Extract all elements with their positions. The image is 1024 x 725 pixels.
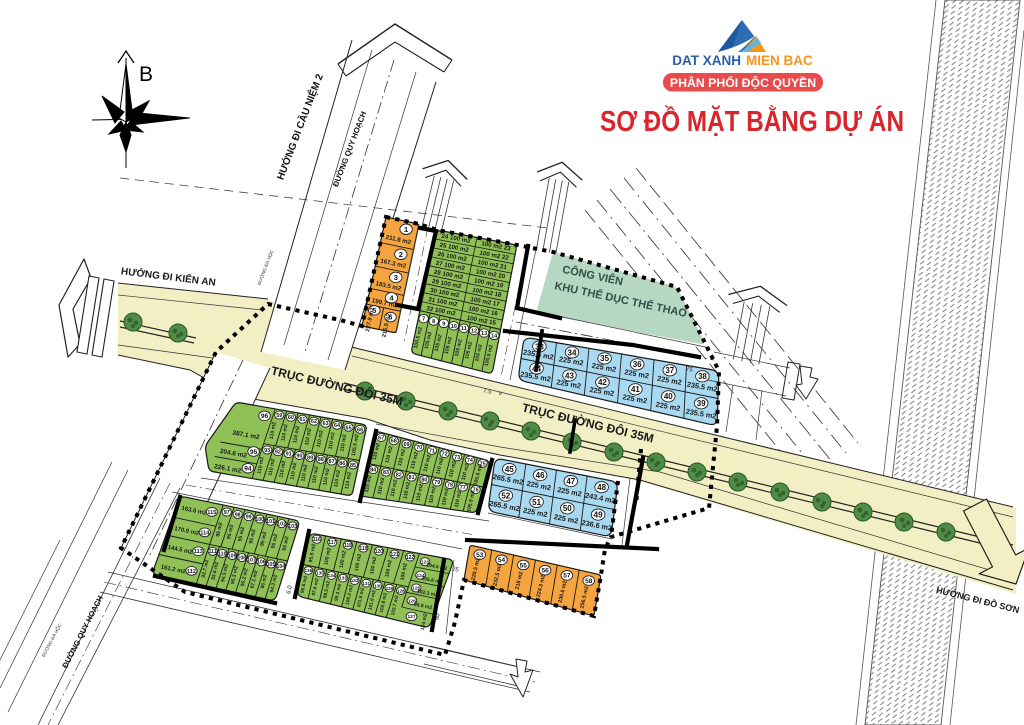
svg-text:82: 82 <box>396 473 402 479</box>
svg-text:68: 68 <box>391 439 397 445</box>
svg-text:69: 69 <box>403 442 409 448</box>
svg-text:134: 134 <box>328 573 336 578</box>
svg-text:135: 135 <box>316 571 324 576</box>
svg-text:ĐƯỜNG ĐÁ HỘC: ĐƯỜNG ĐÁ HỘC <box>40 622 63 658</box>
svg-text:64: 64 <box>334 423 341 429</box>
svg-text:94: 94 <box>244 466 252 473</box>
svg-text:13: 13 <box>481 331 487 337</box>
svg-text:45: 45 <box>505 465 514 474</box>
svg-text:46: 46 <box>536 471 545 480</box>
svg-text:113: 113 <box>194 549 203 555</box>
svg-text:103: 103 <box>288 524 297 530</box>
svg-text:93: 93 <box>264 448 270 454</box>
svg-text:72: 72 <box>442 452 448 458</box>
svg-text:63: 63 <box>322 421 328 427</box>
svg-text:3: 3 <box>394 273 398 282</box>
svg-text:77: 77 <box>460 485 466 491</box>
svg-text:SƠ ĐỒ MẶT BẰNG DỰ ÁN: SƠ ĐỒ MẶT BẰNG DỰ ÁN <box>600 106 904 138</box>
svg-text:66: 66 <box>357 427 363 433</box>
svg-text:10: 10 <box>451 324 457 330</box>
svg-text:80: 80 <box>421 478 427 484</box>
svg-text:84: 84 <box>370 468 377 474</box>
svg-text:50: 50 <box>563 504 572 513</box>
svg-text:95: 95 <box>250 449 258 456</box>
svg-text:107: 107 <box>247 558 256 564</box>
svg-text:120: 120 <box>375 549 384 555</box>
svg-text:9: 9 <box>442 321 445 327</box>
svg-text:73: 73 <box>454 455 460 461</box>
svg-text:ĐƯỜNG QUY HOẠCH: ĐƯỜNG QUY HOẠCH <box>61 594 106 670</box>
svg-text:85: 85 <box>350 463 356 469</box>
svg-text:2: 2 <box>399 250 403 259</box>
svg-text:128: 128 <box>397 588 405 593</box>
svg-text:58: 58 <box>585 578 593 585</box>
svg-text:121: 121 <box>390 552 399 558</box>
svg-text:47: 47 <box>566 477 575 486</box>
svg-text:110: 110 <box>218 551 227 557</box>
svg-text:98: 98 <box>235 512 241 518</box>
svg-text:49: 49 <box>594 511 603 520</box>
svg-text:112: 112 <box>187 569 196 575</box>
svg-text:83: 83 <box>383 470 389 476</box>
svg-text:7: 7 <box>422 317 425 323</box>
svg-text:116: 116 <box>313 537 321 543</box>
svg-text:100: 100 <box>255 517 264 523</box>
svg-text:111: 111 <box>208 549 216 555</box>
svg-text:132: 132 <box>351 578 359 583</box>
svg-text:48: 48 <box>597 483 606 492</box>
svg-text:65: 65 <box>346 425 352 431</box>
svg-text:109: 109 <box>228 553 237 559</box>
svg-text:127: 127 <box>407 614 415 620</box>
svg-text:79: 79 <box>434 480 440 486</box>
svg-text:60: 60 <box>288 415 294 421</box>
svg-text:56: 56 <box>541 568 549 575</box>
svg-text:B: B <box>139 63 153 86</box>
svg-text:136: 136 <box>304 568 312 573</box>
svg-text:118: 118 <box>344 543 352 549</box>
svg-text:71: 71 <box>429 448 435 454</box>
svg-text:12: 12 <box>471 329 477 335</box>
svg-text:92: 92 <box>275 450 281 456</box>
svg-text:51: 51 <box>532 498 541 507</box>
svg-text:89: 89 <box>307 455 313 461</box>
svg-text:130: 130 <box>374 583 382 588</box>
svg-text:86: 86 <box>339 461 345 467</box>
svg-text:133: 133 <box>339 576 347 581</box>
svg-text:52: 52 <box>501 492 510 501</box>
svg-text:105: 105 <box>267 562 276 568</box>
svg-text:1: 1 <box>404 225 408 234</box>
svg-text:61: 61 <box>299 417 305 423</box>
svg-text:11: 11 <box>461 326 467 332</box>
svg-text:122: 122 <box>406 555 415 561</box>
svg-text:99: 99 <box>246 515 252 521</box>
svg-text:119: 119 <box>359 546 367 552</box>
svg-text:PHÂN PHỐI ĐỘC QUYỀN: PHÂN PHỐI ĐỘC QUYỀN <box>670 75 816 90</box>
svg-text:108: 108 <box>237 556 246 562</box>
svg-text:MIEN BAC: MIEN BAC <box>746 53 813 68</box>
svg-text:78: 78 <box>447 483 453 489</box>
svg-text:6.0: 6.0 <box>286 584 294 594</box>
svg-text:81: 81 <box>409 475 415 481</box>
svg-text:101: 101 <box>266 519 275 525</box>
svg-text:102: 102 <box>277 522 286 528</box>
svg-text:DAT XANH: DAT XANH <box>672 53 741 68</box>
svg-text:37: 37 <box>665 366 674 375</box>
svg-text:74: 74 <box>467 458 474 464</box>
svg-text:131: 131 <box>362 581 370 586</box>
svg-text:70: 70 <box>416 445 422 451</box>
svg-text:87: 87 <box>329 459 335 465</box>
svg-text:106: 106 <box>257 560 266 566</box>
svg-text:ĐƯỜNG ĐÁ HỘC: ĐƯỜNG ĐÁ HỘC <box>256 248 275 286</box>
svg-text:59: 59 <box>276 413 282 419</box>
svg-text:88: 88 <box>318 457 324 463</box>
svg-text:115: 115 <box>207 510 216 516</box>
svg-text:8: 8 <box>432 319 435 325</box>
svg-text:14: 14 <box>491 333 498 339</box>
svg-text:40: 40 <box>664 392 673 401</box>
svg-text:38: 38 <box>698 372 707 381</box>
svg-text:55: 55 <box>520 562 528 569</box>
svg-text:39: 39 <box>697 399 706 408</box>
svg-text:96: 96 <box>261 413 269 420</box>
svg-text:90: 90 <box>296 454 302 460</box>
svg-text:67: 67 <box>378 436 384 442</box>
svg-text:129: 129 <box>386 586 394 591</box>
svg-text:60: 60 <box>434 612 441 620</box>
svg-text:62: 62 <box>311 419 317 425</box>
svg-text:117: 117 <box>328 540 336 546</box>
svg-text:91: 91 <box>286 452 292 458</box>
svg-text:57: 57 <box>563 573 571 580</box>
svg-text:97: 97 <box>224 510 230 516</box>
svg-text:54: 54 <box>498 557 506 564</box>
svg-text:114: 114 <box>200 530 210 536</box>
svg-text:104: 104 <box>276 564 285 570</box>
